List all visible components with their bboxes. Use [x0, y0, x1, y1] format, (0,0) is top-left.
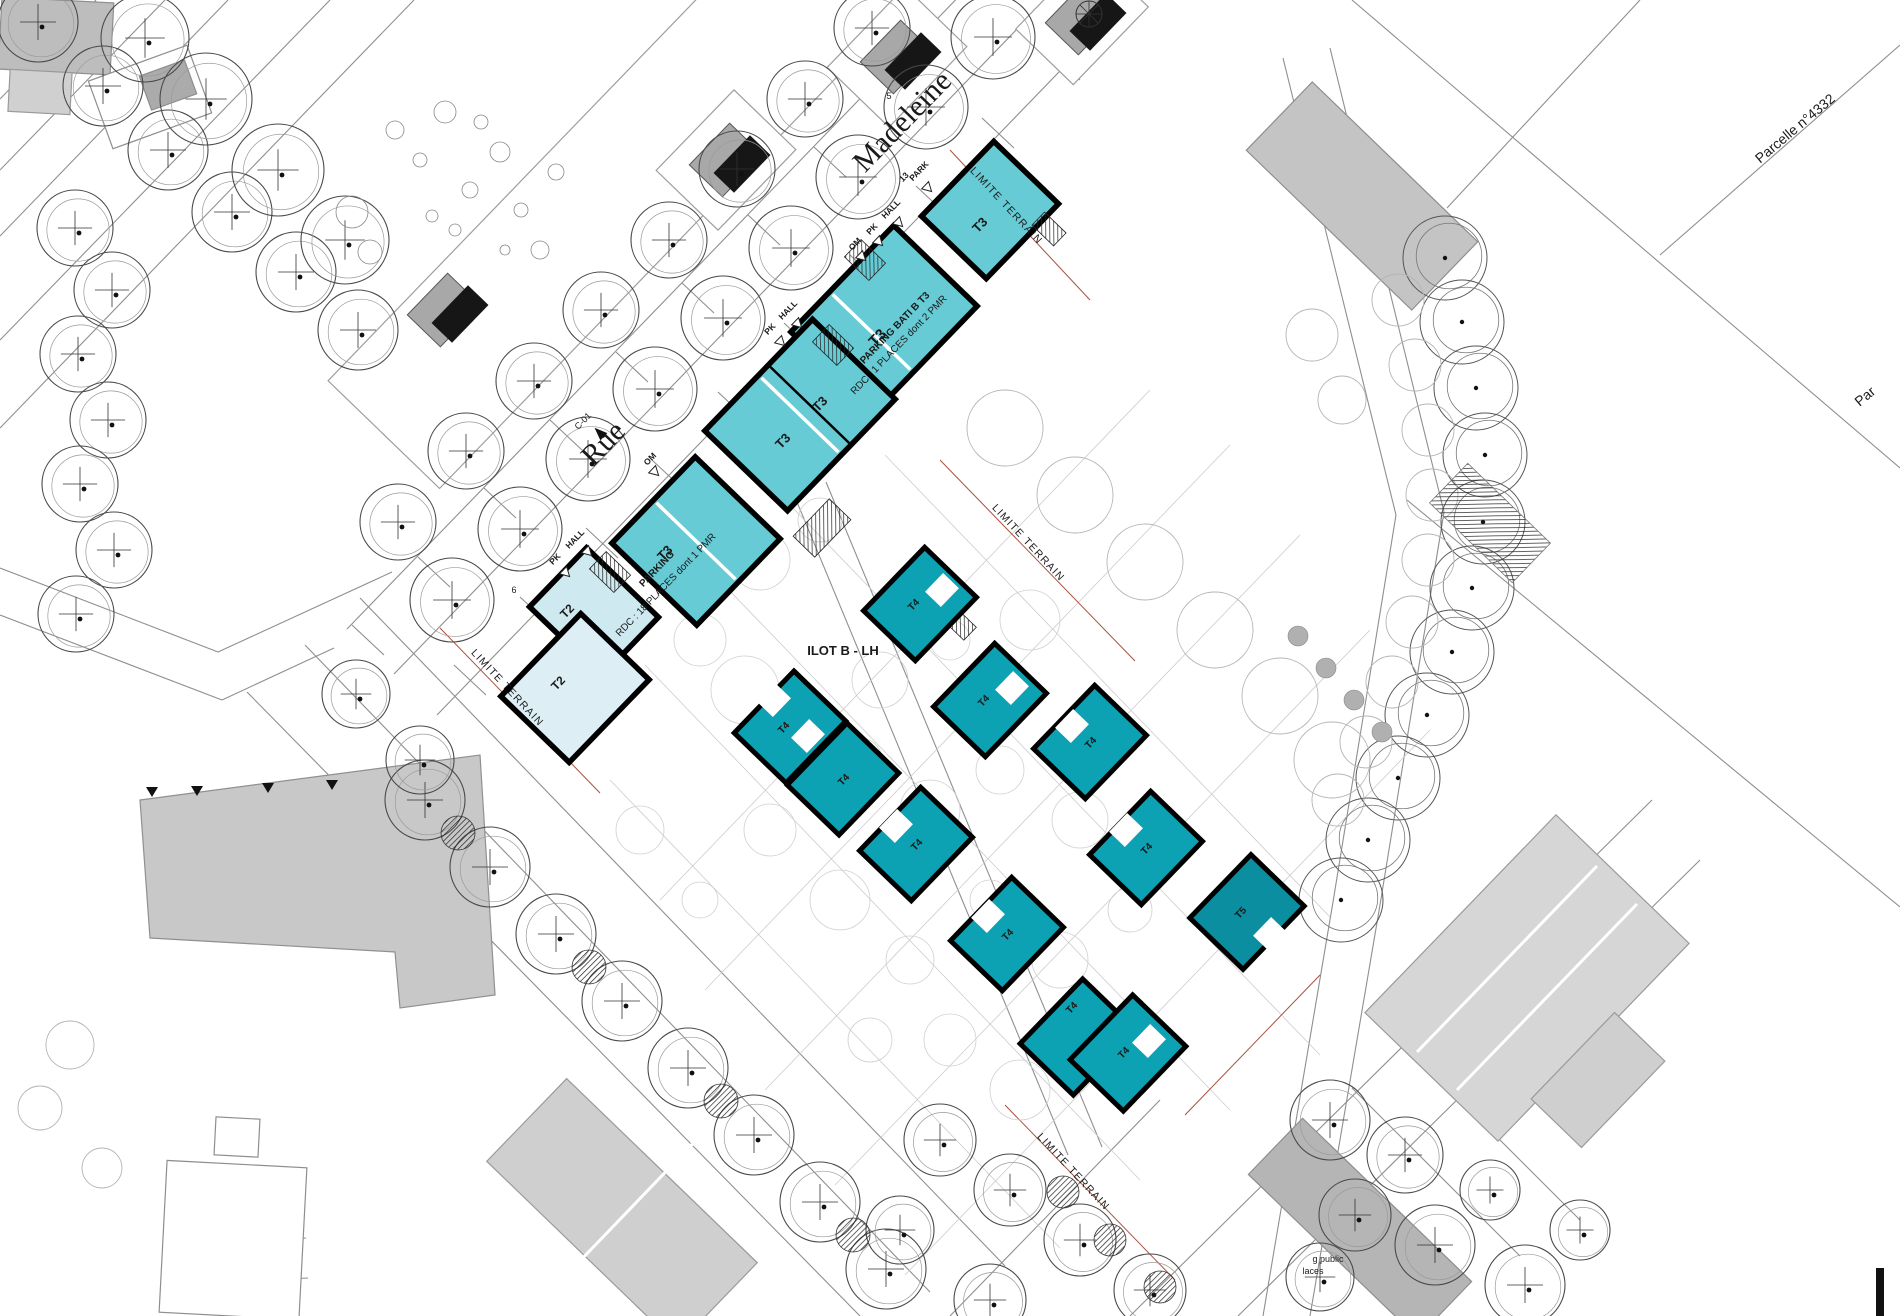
tree-icon: [954, 1264, 1026, 1316]
tree-icon: [38, 576, 114, 652]
tree-icon: [360, 484, 436, 560]
tree-icon: [1326, 798, 1410, 882]
tree-trunk-dot: [234, 215, 239, 220]
tree-crown-inner: [421, 568, 490, 637]
tree-trunk-dot: [1366, 838, 1370, 842]
tree-trunk-dot: [860, 180, 865, 185]
tree-icon: [1107, 524, 1183, 600]
tree-icon: [1000, 590, 1060, 650]
tree-crown-inner: [1300, 1089, 1366, 1155]
tree-trunk-dot: [522, 532, 527, 537]
existing-building: [8, 69, 72, 114]
plan-annotation: ILOT B - LH: [807, 643, 879, 658]
tree-icon: [967, 390, 1043, 466]
limite-terrain-label: LIMITE TERRAIN: [989, 502, 1067, 584]
tree-trunk-dot: [671, 243, 676, 248]
tree-crown-inner: [1468, 1167, 1517, 1216]
road-line: [1380, 512, 1444, 905]
tree-trunk-dot: [208, 102, 213, 107]
existing-building: [140, 755, 495, 1008]
tree-icon: [749, 206, 833, 290]
tree-icon: [924, 1014, 976, 1066]
tree-crown-inner: [50, 325, 112, 387]
tree-trunk-dot: [793, 251, 798, 256]
tree-trunk-dot: [358, 697, 363, 702]
tree-icon: [613, 347, 697, 431]
tree-crown-inner: [962, 5, 1031, 74]
tree-icon: [46, 1021, 94, 1069]
tree-icon: [810, 870, 870, 930]
road-line: [1447, 0, 1640, 208]
road-line: [682, 283, 714, 313]
tree-trunk-dot: [1450, 650, 1454, 654]
bush-icon: [1316, 658, 1336, 678]
tree-icon: [1389, 339, 1441, 391]
tree-trunk-dot: [1425, 713, 1429, 717]
tree-trunk-dot: [298, 275, 303, 280]
existing-building: [214, 1117, 260, 1157]
tree-crown-inner: [243, 134, 318, 209]
tree-icon: [70, 382, 146, 458]
tree-trunk-dot: [400, 525, 405, 530]
bush-icon: [449, 224, 461, 236]
tree-icon: [1318, 376, 1366, 424]
tree-trunk-dot: [454, 603, 459, 608]
tree-icon: [951, 0, 1035, 79]
tree-icon: [1294, 722, 1370, 798]
tree-icon: [410, 558, 494, 642]
tree-crown-inner: [856, 1238, 922, 1304]
tree-crown-inner: [331, 668, 387, 724]
tree-icon: [974, 1154, 1046, 1226]
tree-icon: [18, 1086, 62, 1130]
tree-trunk-dot: [347, 243, 352, 248]
parcel-line: [610, 780, 1060, 1248]
tree-crown-inner: [84, 261, 146, 323]
bush-icon: [434, 101, 456, 123]
tree-icon: [1460, 1160, 1520, 1220]
street-annotation: HALL: [776, 298, 799, 321]
hatched-tree-icon: [704, 1084, 738, 1118]
tree-trunk-dot: [739, 172, 744, 177]
tree-icon: [1286, 309, 1338, 361]
hatched-area: [1430, 463, 1551, 582]
tree-trunk-dot: [280, 173, 285, 178]
tree-trunk-dot: [82, 487, 87, 492]
tree-trunk-dot: [105, 89, 110, 94]
plan-annotation: 6: [511, 585, 516, 595]
plan-annotation: C-01: [572, 410, 593, 431]
tree-trunk-dot: [1443, 256, 1447, 260]
tree-icon: [1434, 346, 1518, 430]
tree-trunk-dot: [78, 617, 83, 622]
scale-mark: [1876, 1268, 1884, 1316]
tree-trunk-dot: [902, 1233, 907, 1238]
tree-trunk-dot: [1474, 386, 1478, 390]
bush-icon: [1288, 626, 1308, 646]
building-bati-t3-1: [922, 141, 1059, 278]
bush-icon: [1344, 690, 1364, 710]
tree-icon: [1367, 1117, 1443, 1193]
tree-trunk-dot: [603, 313, 608, 318]
tree-trunk-dot: [468, 454, 473, 459]
road-line: [352, 625, 384, 655]
tree-icon: [1485, 1245, 1565, 1316]
tree-icon: [1420, 280, 1504, 364]
tree-crown-inner: [266, 241, 332, 307]
tree-icon: [1299, 858, 1383, 942]
plan-annotation: g public: [1312, 1254, 1344, 1264]
street-annotation: PK: [864, 221, 880, 237]
tree-icon: [852, 652, 908, 708]
tree-icon: [1366, 656, 1418, 708]
tree-trunk-dot: [1527, 1288, 1532, 1293]
existing-building: [1246, 82, 1477, 310]
tree-trunk-dot: [170, 153, 175, 158]
tree-icon: [848, 1018, 892, 1062]
tree-trunk-dot: [110, 423, 115, 428]
tree-icon: [232, 124, 324, 216]
tree-trunk-dot: [80, 357, 85, 362]
tree-trunk-dot: [40, 25, 45, 30]
plan-annotation: Parcelle n°4332: [1752, 90, 1838, 166]
road-line: [0, 568, 218, 652]
bush-icon: [358, 240, 382, 264]
tree-trunk-dot: [756, 1138, 761, 1143]
tree-icon: [681, 276, 765, 360]
tree-icon: [301, 196, 389, 284]
road-line: [1407, 500, 1900, 907]
hatched-tree-icon: [836, 1218, 870, 1252]
existing-building: [159, 1160, 307, 1316]
tree-crown-inner: [80, 391, 142, 453]
tree-trunk-dot: [807, 102, 812, 107]
tree-crown-inner: [202, 181, 268, 247]
tree-trunk-dot: [558, 937, 563, 942]
tree-crown-inner: [52, 455, 114, 517]
road-line: [1333, 515, 1396, 902]
bush-icon: [490, 142, 510, 162]
tree-icon: [744, 804, 796, 856]
tree-crown-inner: [1433, 287, 1499, 353]
bush-icon: [462, 182, 478, 198]
compass-icon: [1076, 1, 1102, 27]
tree-trunk-dot: [1332, 1123, 1337, 1128]
tree-icon: [1402, 534, 1454, 586]
existing-building: [1365, 815, 1689, 1141]
tree-crown-inner: [370, 493, 432, 555]
tree-crown-inner: [760, 216, 829, 285]
tree-trunk-dot: [725, 321, 730, 326]
tree-trunk-dot: [874, 31, 879, 36]
tree-trunk-dot: [1582, 1233, 1587, 1238]
tree-trunk-dot: [1357, 1218, 1362, 1223]
tree-trunk-dot: [624, 1004, 629, 1009]
tree-crown-inner: [1339, 805, 1405, 871]
tree-trunk-dot: [1012, 1193, 1017, 1198]
tree-icon: [37, 190, 113, 266]
tree-crown-inner: [592, 970, 658, 1036]
plan-annotation: 5: [886, 91, 891, 101]
tree-icon: [616, 806, 664, 854]
tree-icon: [40, 316, 116, 392]
tree-crown-inner: [489, 497, 558, 566]
bush-icon: [426, 210, 438, 222]
tree-trunk-dot: [147, 41, 152, 46]
tree-trunk-dot: [992, 1303, 997, 1308]
tree-crown-inner: [875, 1204, 931, 1260]
tree-trunk-dot: [536, 384, 541, 389]
tree-trunk-dot: [1470, 586, 1474, 590]
hatched-tree-icon: [441, 816, 475, 850]
tree-crown-inner: [913, 1112, 972, 1171]
road-line: [616, 352, 648, 382]
tree-crown-inner: [963, 1272, 1022, 1316]
tree-trunk-dot: [657, 392, 662, 397]
site-plan-canvas: PKHALLOMPKHALLOMPKHALL13PARKT3PARKING BA…: [0, 0, 1900, 1316]
tree-trunk-dot: [116, 553, 121, 558]
tree-crown-inner: [624, 357, 693, 426]
tree-crown-inner: [1398, 680, 1464, 746]
tree-icon: [322, 660, 390, 728]
tree-crown-inner: [1377, 1126, 1439, 1188]
plan-annotation: laces: [1302, 1266, 1324, 1276]
hatched-tree-icon: [572, 950, 606, 984]
road-line: [950, 1100, 1160, 1316]
hatched-tree-icon: [1144, 1271, 1176, 1303]
tree-trunk-dot: [822, 1205, 827, 1210]
tree-icon: [42, 446, 118, 522]
bush-icon: [1372, 722, 1392, 742]
bush-icon: [336, 196, 368, 228]
tree-trunk-dot: [1460, 320, 1464, 324]
tree-trunk-dot: [1483, 453, 1487, 457]
tree-crown-inner: [47, 199, 109, 261]
existing-building: [0, 0, 114, 75]
tree-trunk-dot: [1082, 1243, 1087, 1248]
tree-crown-inner: [48, 585, 110, 647]
tree-trunk-dot: [888, 1272, 893, 1277]
plan-annotation: Par: [1851, 383, 1878, 409]
tree-icon: [76, 512, 152, 588]
tree-trunk-dot: [422, 763, 427, 768]
tree-trunk-dot: [1492, 1193, 1497, 1198]
bush-icon: [386, 121, 404, 139]
tree-crown-inner: [1447, 353, 1513, 419]
street-annotation: PARK: [907, 158, 931, 182]
bush-icon: [413, 153, 427, 167]
road-line: [222, 648, 334, 700]
tree-icon: [82, 1148, 122, 1188]
tree-crown-inner: [983, 1162, 1042, 1221]
tree-trunk-dot: [690, 1071, 695, 1076]
street-annotation: OM: [641, 451, 658, 468]
tree-trunk-dot: [427, 803, 432, 808]
tree-trunk-dot: [114, 293, 119, 298]
tree-crown-inner: [86, 521, 148, 583]
tree-icon: [256, 232, 336, 312]
bush-icon: [474, 115, 488, 129]
entrance-marker-icon: [146, 787, 158, 797]
tree-trunk-dot: [1407, 1158, 1412, 1163]
tree-icon: [904, 1104, 976, 1176]
tree-trunk-dot: [77, 231, 82, 236]
tree-trunk-dot: [1339, 898, 1343, 902]
tree-trunk-dot: [1437, 1248, 1442, 1253]
tree-trunk-dot: [942, 1143, 947, 1148]
tree-trunk-dot: [1322, 1280, 1327, 1285]
site-plan: PKHALLOMPKHALLOMPKHALL13PARKT3PARKING BA…: [0, 0, 1900, 1316]
road-line: [218, 572, 392, 652]
tree-icon: [1177, 592, 1253, 668]
tree-icon: [886, 936, 934, 984]
building-footprint: [922, 141, 1059, 278]
tree-trunk-dot: [995, 40, 1000, 45]
tree-trunk-dot: [1396, 776, 1400, 780]
tree-trunk-dot: [492, 870, 497, 875]
tree-icon: [1052, 792, 1108, 848]
tree-crown-inner: [692, 286, 761, 355]
tree-trunk-dot: [360, 333, 365, 338]
tree-icon: [1550, 1200, 1610, 1260]
tree-crown-inner: [1558, 1207, 1607, 1256]
tree-icon: [682, 882, 718, 918]
hatched-tree-icon: [1094, 1224, 1126, 1256]
street-annotation: HALL: [563, 527, 586, 550]
tree-crown-inner: [1369, 743, 1435, 809]
